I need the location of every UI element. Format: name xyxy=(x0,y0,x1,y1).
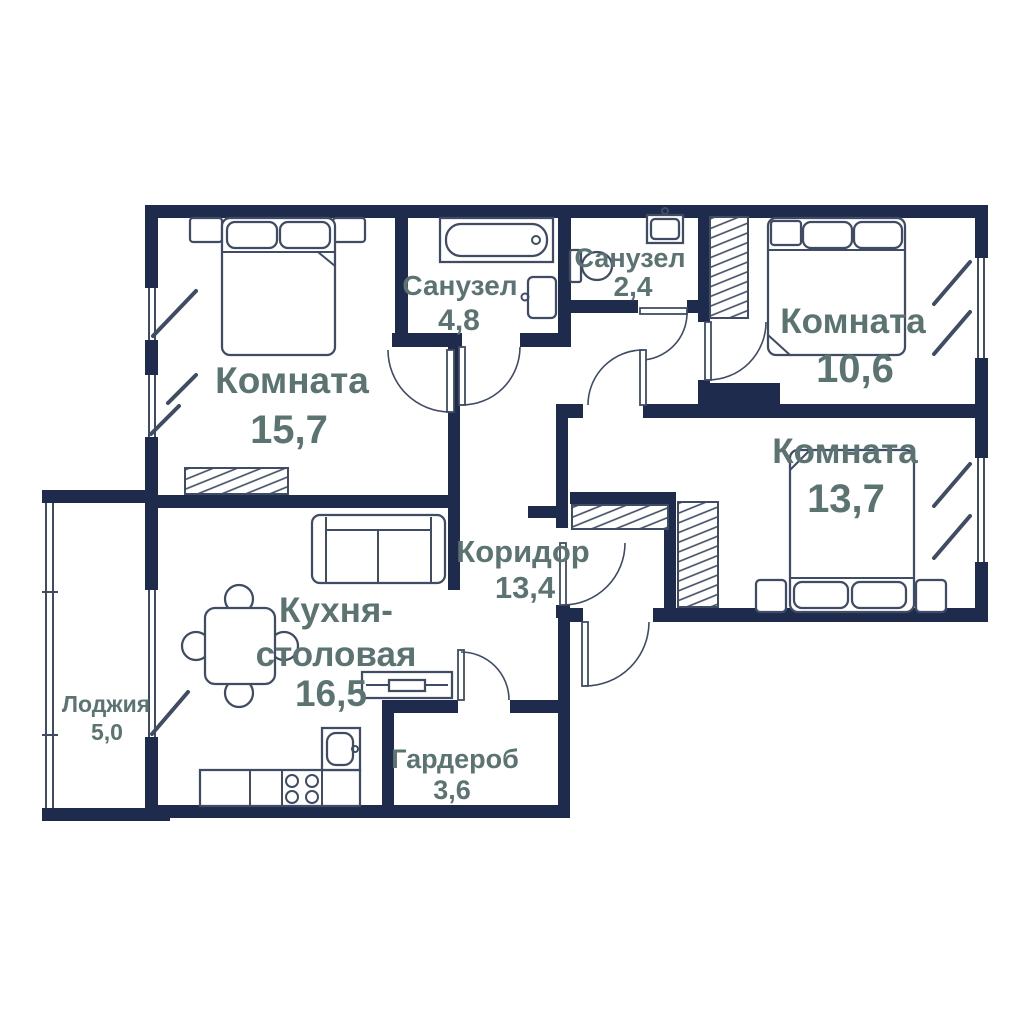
wall-segment xyxy=(705,404,988,418)
room-label-loggia: Лоджия 5,0 xyxy=(62,691,150,745)
window xyxy=(149,375,196,437)
wall-segment xyxy=(556,605,570,618)
nightstand-icon xyxy=(190,218,222,242)
window xyxy=(934,258,984,358)
wall-segment xyxy=(145,340,158,375)
nightstand-icon xyxy=(333,218,365,242)
wall-segment xyxy=(382,700,458,713)
room-area: 13,4 xyxy=(495,570,556,605)
tv-stand-icon xyxy=(362,672,452,698)
room-name: Комната xyxy=(780,302,926,341)
room-label-bath-big: Санузел 4,8 xyxy=(402,270,517,337)
sink-icon xyxy=(522,277,557,318)
bathtub-icon xyxy=(440,218,553,262)
wall-segment xyxy=(558,608,570,818)
wall-segment xyxy=(145,205,988,218)
room-name: Лоджия xyxy=(62,691,150,717)
door-bedroom1 xyxy=(388,350,454,412)
room-area: 5,0 xyxy=(91,719,123,745)
wall-segment xyxy=(145,218,158,288)
wall-segment xyxy=(570,492,676,504)
room-name: Комната xyxy=(772,432,918,471)
room-name: Комната xyxy=(215,360,369,401)
door-wardrobe-room xyxy=(458,650,509,700)
sofa-icon xyxy=(312,515,445,583)
wall-segment xyxy=(510,700,558,713)
floor-plan: Комната 15,7 Санузел 4,8 Санузел 2,4 Ком… xyxy=(0,0,1024,1024)
room-label-corridor: Коридор 13,4 xyxy=(456,534,589,605)
wall-segment xyxy=(520,333,571,347)
balcony-window xyxy=(149,590,188,737)
nightstand-icon xyxy=(756,580,786,612)
room-area: 15,7 xyxy=(250,408,328,452)
floor-plan-page: Комната 15,7 Санузел 4,8 Санузел 2,4 Ком… xyxy=(0,0,1024,1024)
room-label-wardrobe-room: Гардероб 3,6 xyxy=(391,744,519,805)
window xyxy=(934,458,984,562)
kitchen-counter-icon xyxy=(200,770,360,806)
double-bed-icon xyxy=(790,450,914,612)
wall-segment xyxy=(643,404,705,418)
room-name: Кухня- xyxy=(279,591,393,630)
wardrobe-icon xyxy=(185,468,288,494)
window xyxy=(149,288,196,340)
wall-segment xyxy=(975,218,988,258)
wall-segment xyxy=(42,490,158,503)
wall-segment xyxy=(698,215,710,322)
room-area: 2,4 xyxy=(614,271,653,302)
wall-segment xyxy=(145,737,158,813)
wardrobe-icon xyxy=(572,505,668,529)
wall-segment xyxy=(528,506,568,518)
wall-segment xyxy=(698,380,710,407)
room-area: 4,8 xyxy=(438,304,480,337)
room-area: 13,7 xyxy=(807,477,885,521)
room-name: Санузел xyxy=(574,243,685,273)
wall-segment xyxy=(42,808,170,821)
room-label-bedroom1: Комната 15,7 xyxy=(215,360,369,452)
entrance-door xyxy=(582,622,649,686)
kitchen-sink-icon xyxy=(322,728,360,770)
wall-segment xyxy=(158,495,448,508)
room-name: Санузел xyxy=(402,270,517,301)
nightstand-icon xyxy=(916,580,946,612)
room-label-bath-small: Санузел 2,4 xyxy=(574,243,685,302)
wall-segment xyxy=(145,503,158,590)
room-name: Коридор xyxy=(456,534,589,569)
wardrobe-icon xyxy=(678,502,718,607)
room-name: Гардероб xyxy=(391,744,519,774)
loggia-glazing xyxy=(42,503,58,808)
door-bedroom3 xyxy=(588,350,646,405)
room-area: 10,6 xyxy=(816,347,894,391)
wall-segment xyxy=(975,562,988,622)
wardrobe-icon xyxy=(710,217,748,318)
door-bedroom2 xyxy=(705,322,766,380)
double-bed-icon xyxy=(222,218,335,355)
wall-segment xyxy=(570,608,583,622)
room-area: 16,5 xyxy=(295,673,367,714)
door-bath-big xyxy=(459,347,520,405)
door-bath-small xyxy=(640,308,687,360)
room-area: 3,6 xyxy=(433,775,471,805)
room-name: столовая xyxy=(256,635,417,674)
